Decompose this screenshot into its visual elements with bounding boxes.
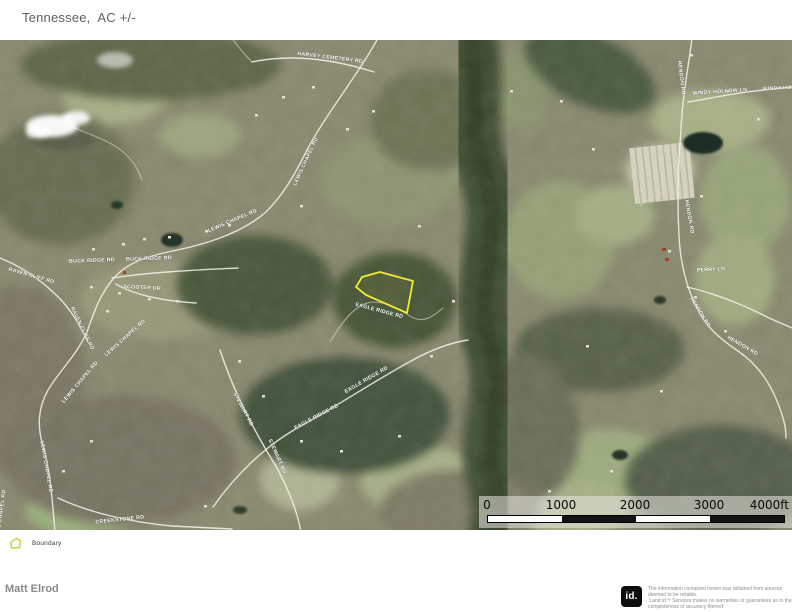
map-document: Tennessee, AC +/- — [0, 0, 792, 612]
boundary-legend-icon — [8, 537, 23, 550]
land-id-logo: id. — [621, 586, 642, 607]
scale-tick: 0 — [483, 498, 491, 512]
legend-item-label: Boundary — [32, 540, 61, 547]
disclaimer: id. The information contained herein was… — [621, 586, 792, 611]
scale-tick: 2000 — [620, 498, 651, 512]
disclaimer-line: completeness or accuracy thereof. — [648, 605, 792, 611]
aerial-map-canvas: HARVEY CEMETERY RD LEWIS CHAPEL RD LEWIS… — [0, 40, 792, 530]
scale-tick: 1000 — [546, 498, 577, 512]
author-name: Matt Elrod — [5, 583, 59, 595]
map-viewport[interactable]: HARVEY CEMETERY RD LEWIS CHAPEL RD LEWIS… — [0, 40, 792, 530]
disclaimer-text: The information contained herein was obt… — [648, 586, 792, 611]
scale-bar: 0 1000 2000 3000 4000ft — [479, 496, 792, 528]
page-title: Tennessee, AC +/- — [22, 10, 136, 25]
legend: Boundary — [8, 537, 61, 550]
scale-tick: 4000ft — [750, 498, 789, 512]
red-house-marker — [123, 271, 126, 274]
scale-tick: 3000 — [694, 498, 725, 512]
scale-bar-segments — [487, 515, 785, 523]
red-barn — [662, 248, 666, 251]
red-barn — [665, 258, 669, 261]
